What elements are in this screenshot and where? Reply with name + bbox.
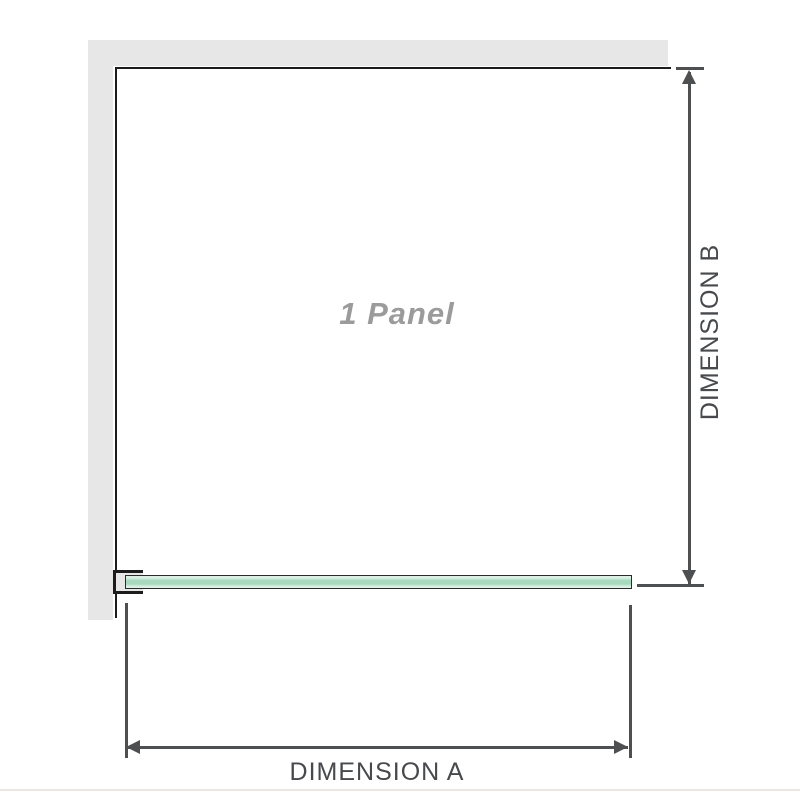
dimension-a-right-tick [629, 605, 632, 758]
dimension-b-line [688, 72, 691, 584]
dimension-b-label: DIMENSION B [695, 182, 725, 482]
dimension-a-line [128, 746, 628, 749]
panel-outline [115, 67, 671, 618]
diagram-canvas: 1 Panel DIMENSION B DIMENSION A [0, 0, 800, 800]
bottom-divider [0, 789, 800, 791]
dimension-a-left-tick [125, 603, 128, 758]
arrow-right-icon [614, 740, 628, 754]
dimension-b-top-cap [676, 67, 704, 70]
wall-top [88, 40, 668, 66]
panel-label: 1 Panel [247, 296, 547, 332]
wall-side [88, 40, 113, 620]
dimension-b-bottom-cap [637, 584, 704, 587]
dimension-a-label: DIMENSION A [227, 758, 527, 787]
arrow-down-icon [682, 570, 696, 584]
glass-panel [125, 575, 632, 589]
arrow-up-icon [682, 70, 696, 84]
arrow-left-icon [126, 740, 140, 754]
